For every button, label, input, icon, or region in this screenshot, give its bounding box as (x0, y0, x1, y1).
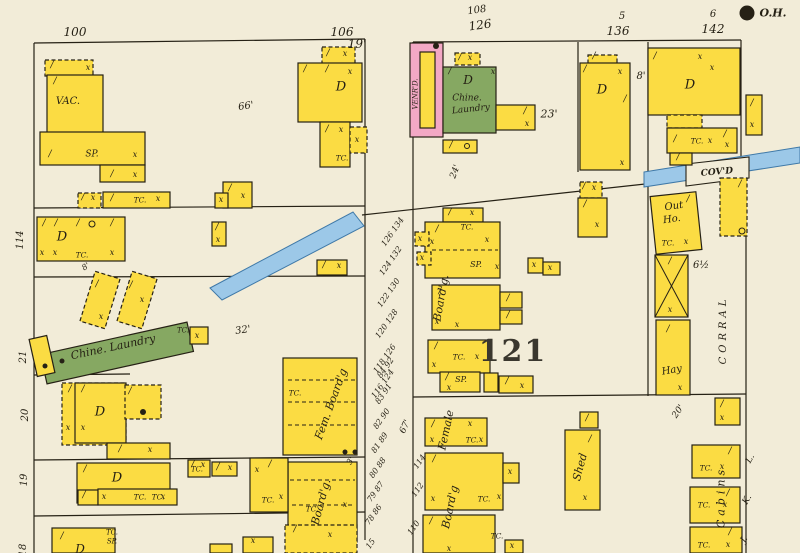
building (720, 178, 747, 236)
building (320, 122, 350, 167)
building (423, 515, 495, 553)
building (690, 527, 742, 553)
building (715, 398, 740, 425)
map-canvas (0, 0, 800, 553)
building (455, 53, 480, 65)
building (78, 193, 101, 208)
building (528, 258, 543, 273)
building (578, 198, 607, 237)
building (250, 458, 288, 512)
building (37, 217, 125, 261)
building (212, 222, 226, 246)
building (496, 105, 535, 130)
building (100, 165, 145, 182)
building (580, 412, 598, 428)
building (350, 127, 367, 153)
building (425, 453, 503, 510)
building (78, 490, 98, 505)
building (75, 383, 126, 443)
building (322, 47, 355, 65)
building (212, 462, 237, 476)
building (667, 115, 702, 128)
building (98, 489, 177, 505)
building (692, 445, 740, 478)
building (190, 327, 208, 344)
filled-dot (140, 409, 146, 415)
building (420, 52, 435, 128)
building (107, 443, 170, 459)
building (40, 132, 145, 165)
building (285, 525, 357, 553)
filled-dot (60, 359, 65, 364)
building (746, 95, 762, 135)
building (103, 192, 170, 208)
building (425, 418, 487, 446)
filled-dot (343, 450, 348, 455)
filled-dot (740, 6, 755, 21)
building (443, 208, 483, 222)
building (440, 372, 480, 392)
filled-dot (433, 43, 439, 49)
building (580, 182, 602, 198)
building (650, 192, 702, 254)
building (505, 540, 523, 553)
building (499, 376, 533, 393)
building (484, 373, 498, 392)
filled-dot (43, 364, 48, 369)
building (443, 67, 496, 133)
building (47, 75, 103, 133)
building (503, 463, 519, 483)
building (648, 48, 740, 115)
building (298, 63, 362, 122)
building (580, 63, 630, 170)
building (317, 260, 347, 275)
building (215, 193, 228, 208)
building (243, 537, 273, 553)
building (188, 460, 210, 477)
building (690, 487, 740, 523)
building (432, 285, 500, 330)
sanborn-map: 10010619'10812651366142O.H.66'23'8'24'32… (0, 0, 800, 553)
building (283, 358, 357, 455)
building (670, 153, 692, 165)
building (565, 430, 600, 510)
building (667, 128, 737, 153)
building (656, 320, 690, 395)
building (415, 232, 429, 246)
building (443, 140, 477, 153)
building (45, 60, 93, 76)
building (500, 292, 522, 308)
building (428, 340, 490, 373)
building (52, 528, 115, 553)
building (500, 310, 522, 324)
building (543, 262, 560, 275)
building (417, 252, 431, 265)
filled-dot (353, 450, 358, 455)
building (210, 544, 232, 553)
